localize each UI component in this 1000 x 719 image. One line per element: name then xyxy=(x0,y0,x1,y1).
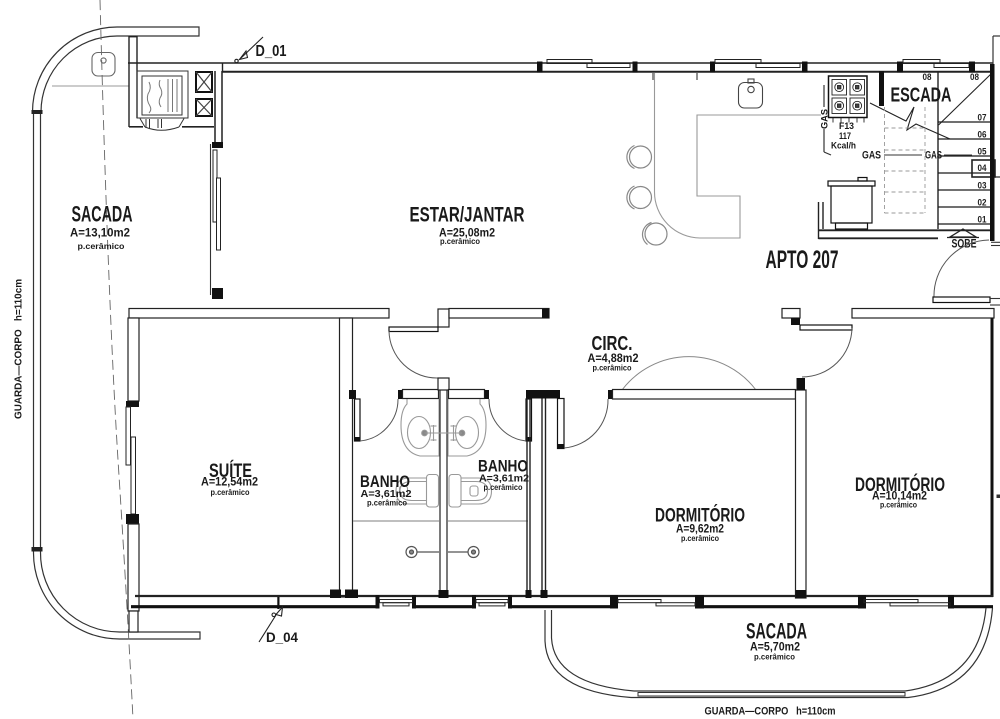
svg-text:p.cerâmico: p.cerâmico xyxy=(78,241,125,251)
svg-text:04: 04 xyxy=(978,163,987,173)
svg-text:p.cerâmico: p.cerâmico xyxy=(211,487,250,497)
svg-text:GUARDA—CORPO h=110cm: GUARDA—CORPO h=110cm xyxy=(13,279,25,419)
svg-text:117: 117 xyxy=(839,131,851,141)
svg-text:SACADA: SACADA xyxy=(72,202,133,227)
svg-text:D_01: D_01 xyxy=(256,43,287,60)
svg-text:SOBE: SOBE xyxy=(952,237,977,251)
svg-text:p.cerâmico: p.cerâmico xyxy=(484,482,523,492)
svg-text:p.cerâmico: p.cerâmico xyxy=(367,498,407,508)
svg-text:p.cerâmico: p.cerâmico xyxy=(593,363,632,373)
svg-text:p.cerâmico: p.cerâmico xyxy=(681,533,719,543)
svg-text:GAS: GAS xyxy=(862,150,881,162)
svg-text:06: 06 xyxy=(978,130,987,140)
svg-text:A=13,10m2: A=13,10m2 xyxy=(70,228,130,240)
svg-text:SACADA: SACADA xyxy=(746,619,807,644)
svg-text:07: 07 xyxy=(978,113,987,123)
svg-text:CIRC.: CIRC. xyxy=(592,332,633,355)
svg-text:ESTAR/JANTAR: ESTAR/JANTAR xyxy=(410,204,525,227)
svg-text:Kcal/h: Kcal/h xyxy=(831,141,856,152)
svg-text:03: 03 xyxy=(978,181,987,191)
svg-text:D_04: D_04 xyxy=(266,629,298,645)
svg-text:GUARDA—CORPO h=110cm: GUARDA—CORPO h=110cm xyxy=(705,706,836,718)
svg-text:05: 05 xyxy=(978,147,987,157)
svg-text:p.cerâmico: p.cerâmico xyxy=(880,500,917,510)
svg-text:ESCADA: ESCADA xyxy=(891,84,952,107)
svg-text:08: 08 xyxy=(970,72,979,82)
svg-text:APTO 207: APTO 207 xyxy=(766,246,839,274)
svg-text:GAS: GAS xyxy=(820,109,831,129)
svg-text:p.cerâmico: p.cerâmico xyxy=(754,652,795,662)
svg-text:02: 02 xyxy=(978,198,987,208)
svg-text:08: 08 xyxy=(923,72,932,82)
svg-text:01: 01 xyxy=(978,215,987,225)
svg-text:p.cerâmico: p.cerâmico xyxy=(440,236,480,246)
